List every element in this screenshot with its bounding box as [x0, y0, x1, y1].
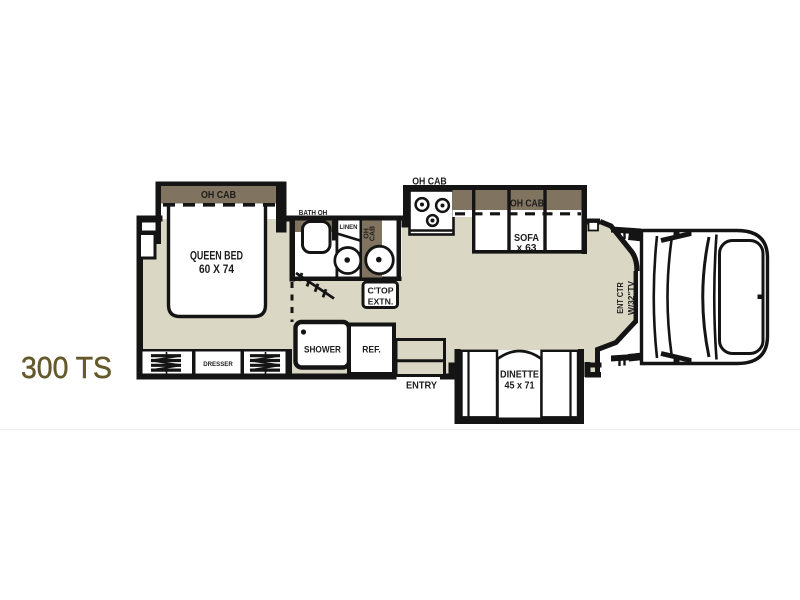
svg-text:EXTN.: EXTN. [368, 297, 394, 307]
svg-text:300 TS: 300 TS [21, 351, 112, 385]
svg-text:REF.: REF. [362, 345, 381, 356]
svg-text:QUEEN BED: QUEEN BED [190, 249, 243, 263]
svg-text:C'TOP: C'TOP [367, 286, 393, 296]
svg-text:BATH OH: BATH OH [299, 208, 328, 217]
svg-text:x 63: x 63 [517, 243, 537, 254]
svg-text:45 x 71: 45 x 71 [505, 381, 536, 392]
svg-text:DINETTE: DINETTE [500, 370, 539, 381]
svg-text:CAB: CAB [370, 226, 377, 241]
svg-text:ENT CTR: ENT CTR [616, 282, 625, 314]
svg-text:OH CAB: OH CAB [510, 199, 544, 210]
svg-text:OH CAB: OH CAB [201, 190, 236, 201]
svg-text:LINEN: LINEN [340, 225, 358, 231]
svg-text:OH CAB: OH CAB [412, 177, 447, 188]
svg-text:DRESSER: DRESSER [203, 361, 233, 368]
svg-text:SHOWER: SHOWER [304, 345, 341, 355]
svg-text:W/32"TV: W/32"TV [627, 280, 636, 315]
svg-text:60 X 74: 60 X 74 [199, 262, 234, 276]
svg-text:ENTRY: ENTRY [406, 380, 437, 392]
